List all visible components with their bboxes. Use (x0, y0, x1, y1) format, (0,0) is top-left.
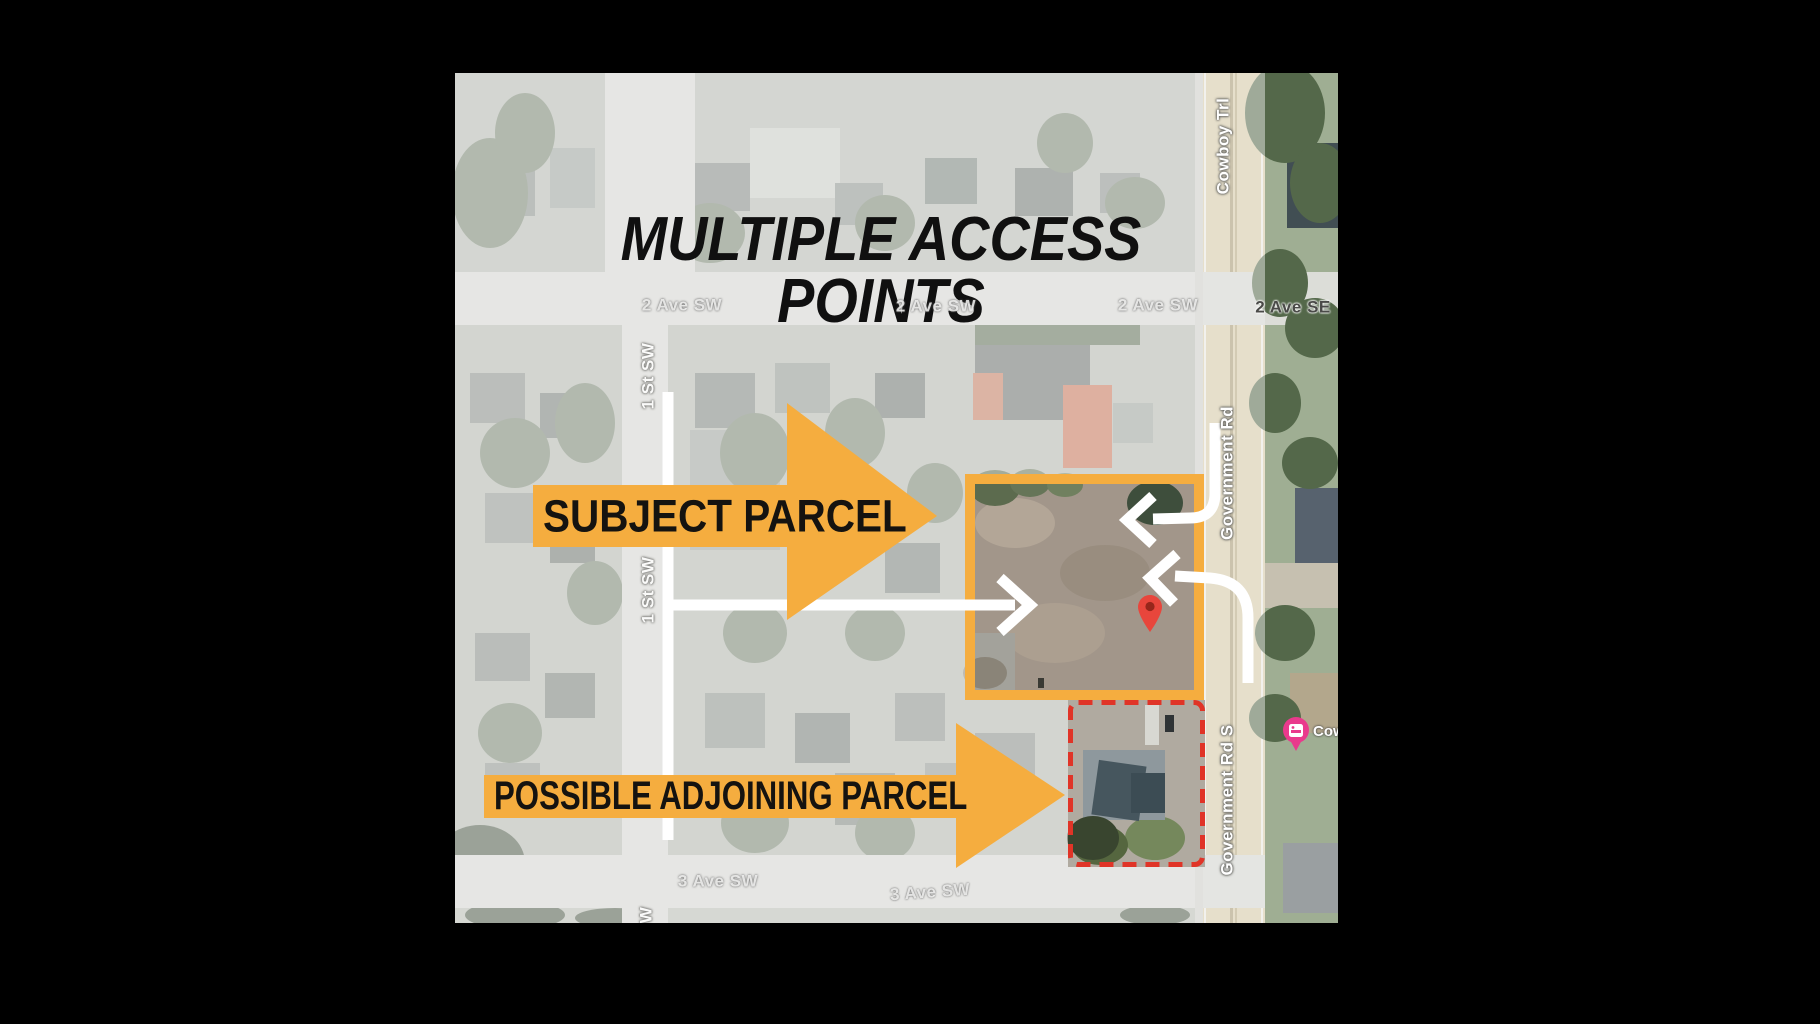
access-curve-south (1175, 576, 1248, 683)
adjoining-parcel-label: POSSIBLE ADJOINING PARCEL (494, 776, 967, 816)
street-label-2-ave-se: 2 Ave SE (1255, 299, 1331, 316)
street-label-1-st-sw-2: 1 St SW (640, 557, 657, 624)
street-label-government-rd: Government Rd (1219, 406, 1236, 540)
adjoining-parcel-outline (1071, 703, 1203, 865)
subject-parcel-label: SUBJECT PARCEL (543, 494, 907, 539)
street-label-cowboy-trl: Cowboy Trl (1215, 98, 1232, 195)
street-label-3-ave-sw-1: 3 Ave SW (678, 873, 758, 890)
street-label-2-ave-sw-2: 2 Ave SW (896, 298, 976, 315)
access-curve-north (1153, 423, 1215, 519)
location-pin-icon (1138, 595, 1162, 632)
street-label-2-ave-sw-3: 2 Ave SW (1118, 297, 1198, 314)
street-label-government-rd-s: Government Rd S (1219, 724, 1236, 875)
satellite-map: SUBJECT PARCEL POSSIBLE ADJOINING PARCEL… (455, 73, 1338, 923)
street-label-partial-w: W (638, 907, 655, 923)
arrowhead-left-icon (1127, 496, 1153, 544)
poi-label: Cow (1313, 724, 1338, 739)
lodging-poi-icon (1281, 717, 1311, 753)
real-estate-map-graphic: SUBJECT PARCEL POSSIBLE ADJOINING PARCEL… (0, 0, 1820, 1024)
street-label-2-ave-sw-1: 2 Ave SW (642, 297, 722, 314)
street-label-1-st-sw-1: 1 St SW (640, 343, 657, 410)
